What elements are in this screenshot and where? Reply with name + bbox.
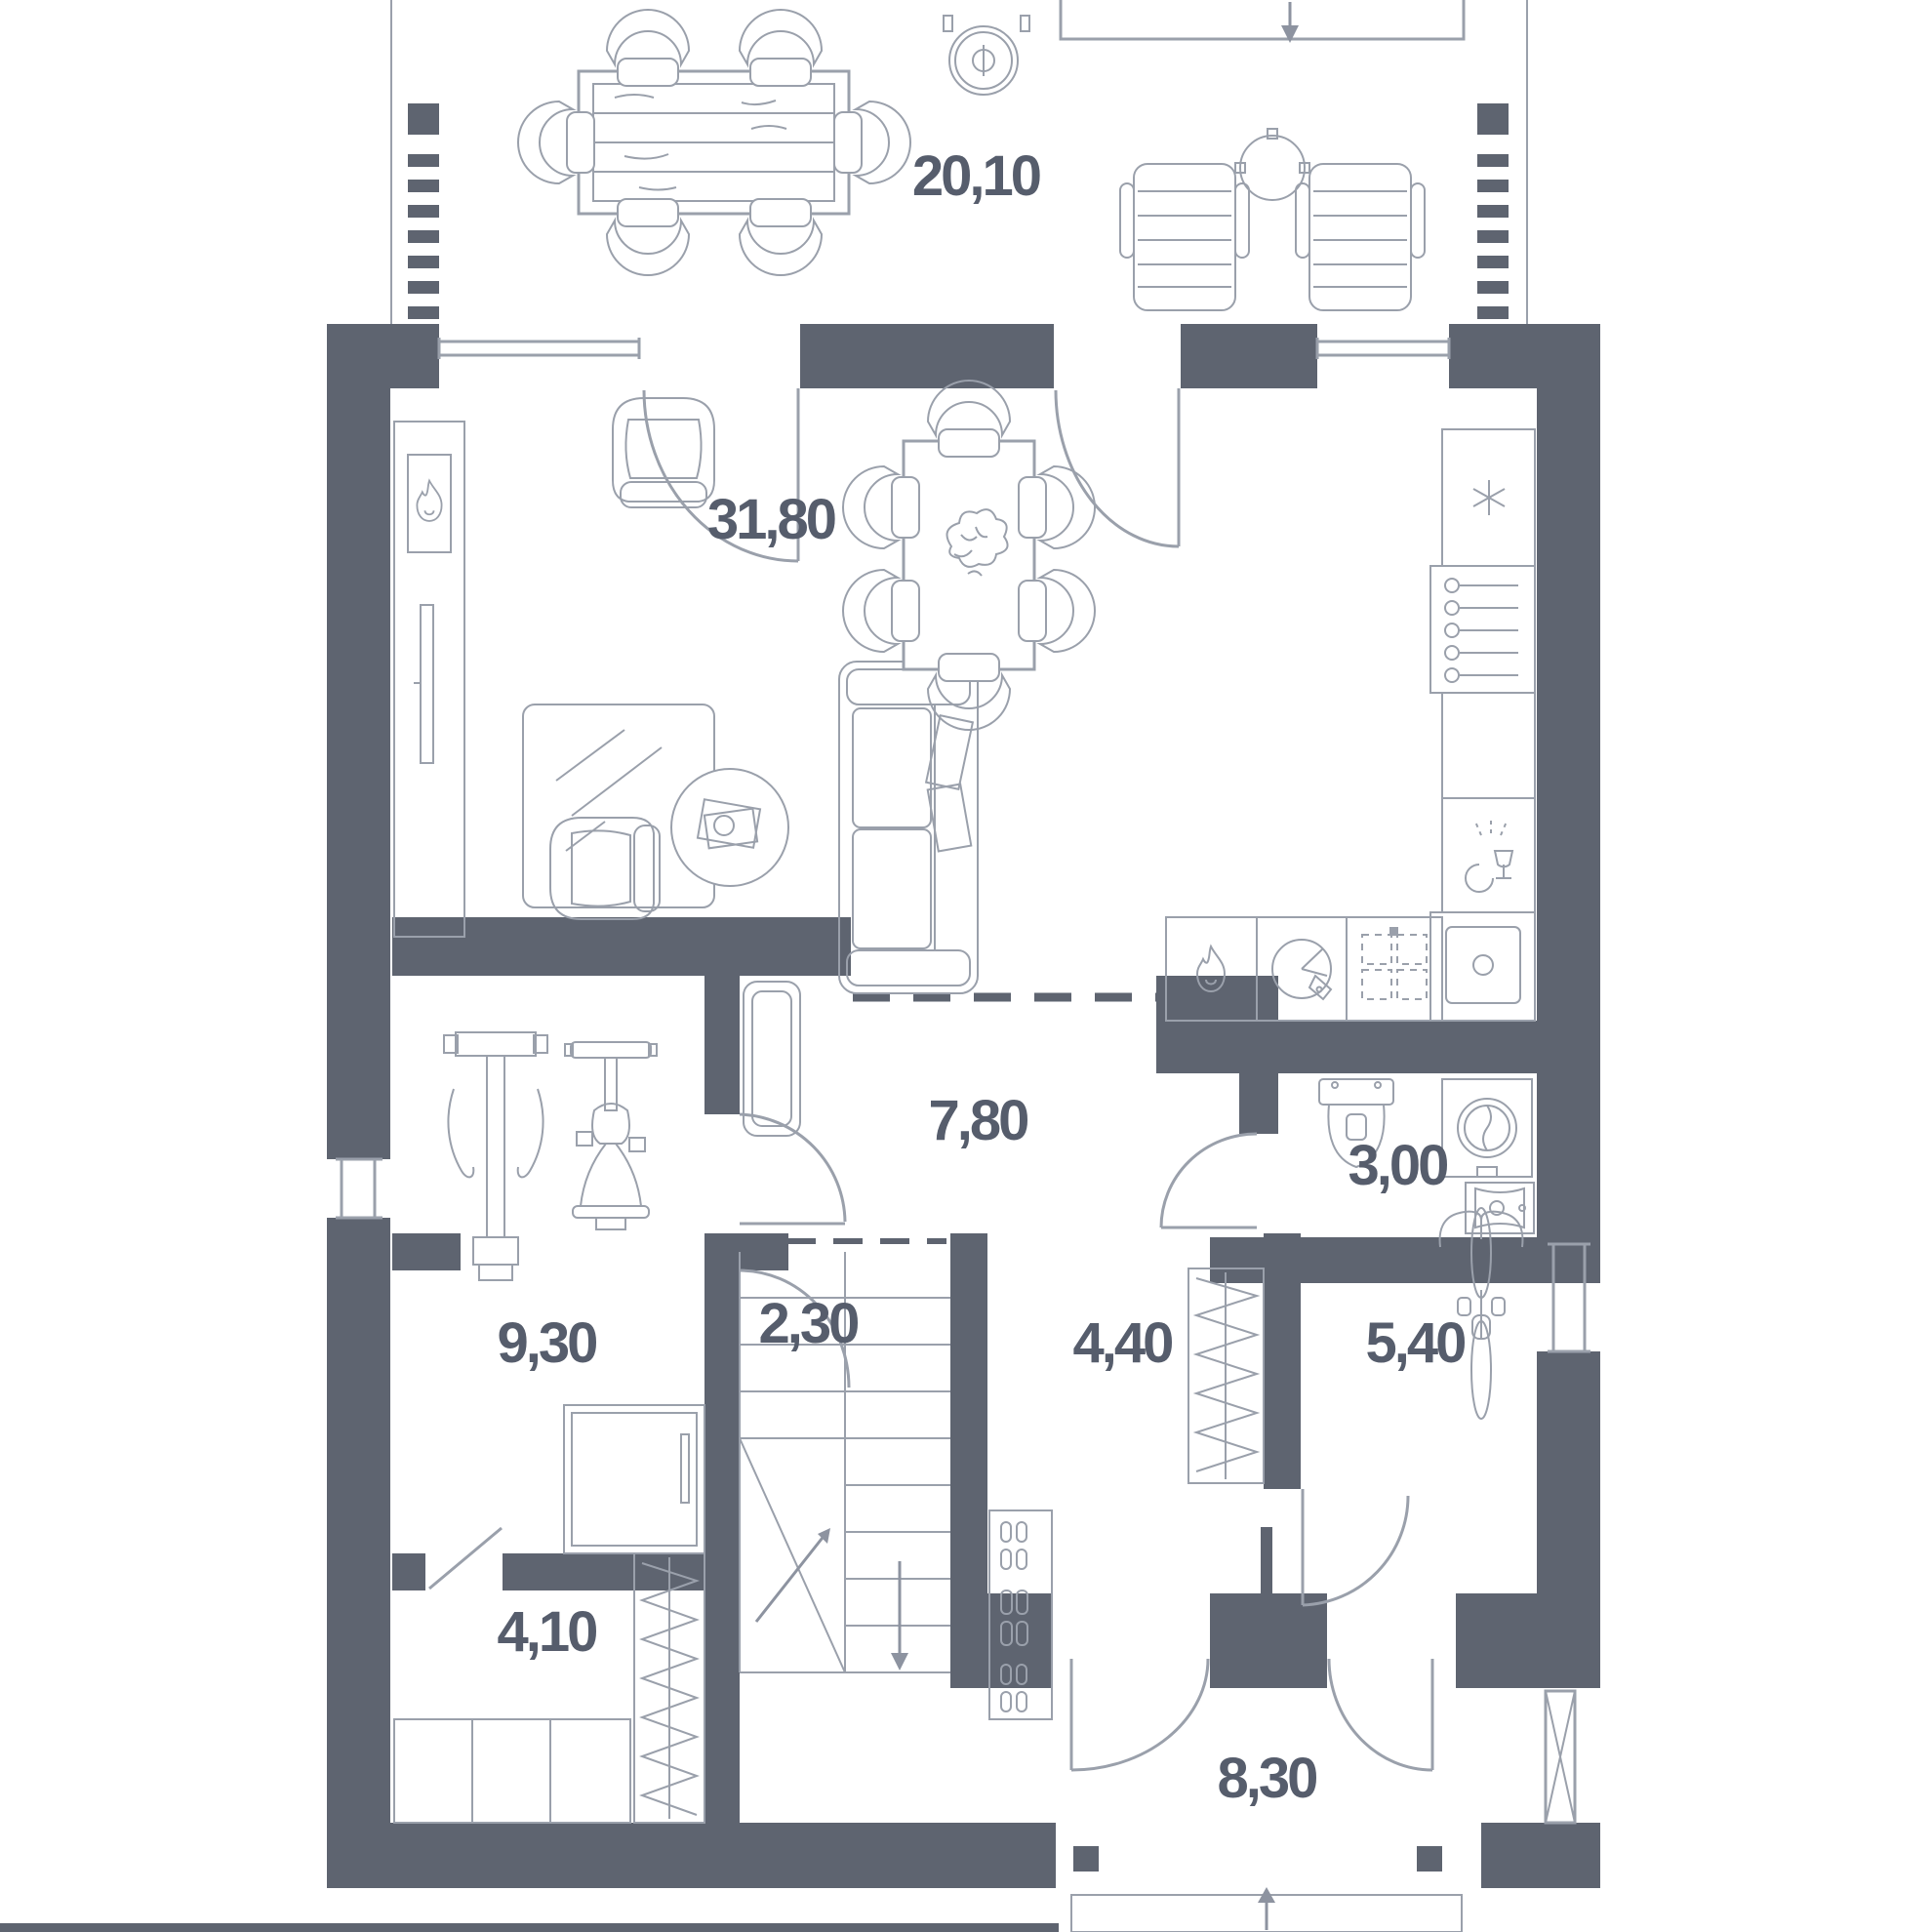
fireplace	[408, 455, 451, 552]
floor-plan: 20,10 31,80 7,80 3,00 9,30 2,30 4,40 5,4…	[0, 0, 1932, 1932]
door-gym	[740, 1114, 845, 1224]
living-room	[394, 398, 978, 993]
stairs-down-arrow-icon	[891, 1561, 908, 1670]
lounge-chairs	[1120, 129, 1425, 310]
label-porch: 8,30	[1218, 1747, 1317, 1810]
dining-table-terrace	[518, 10, 910, 275]
armchair	[613, 398, 714, 507]
window-left-wall	[336, 1159, 382, 1218]
label-closet: 4,10	[498, 1600, 597, 1664]
dining-set	[843, 381, 1095, 730]
window-top-right	[1317, 338, 1449, 359]
label-bathroom: 3,00	[1348, 1134, 1448, 1197]
chair	[607, 10, 689, 86]
door-bathroom	[1161, 1134, 1257, 1228]
walls	[0, 324, 1600, 1932]
label-hallway: 7,80	[929, 1089, 1028, 1152]
oven-icon	[1272, 940, 1331, 999]
door-storage	[1303, 1489, 1408, 1605]
snowflake-icon	[1473, 480, 1505, 515]
dishwasher-icon	[1442, 798, 1535, 912]
wine-rack-icon	[1430, 566, 1535, 693]
kitchen	[1166, 429, 1535, 1021]
gym-room	[444, 1032, 657, 1280]
side-table	[1240, 136, 1305, 200]
label-living: 31,80	[707, 488, 835, 551]
hatch-ladder-left	[408, 103, 439, 319]
coffee-table	[671, 769, 788, 886]
hob-icon	[1362, 935, 1427, 999]
label-terrace: 20,10	[912, 144, 1040, 208]
clothes-rail-entry	[1188, 1268, 1264, 1483]
kitchen-column	[1430, 429, 1535, 1021]
window-cross-icon	[1546, 1691, 1575, 1823]
kitchen-sink-icon	[1430, 912, 1535, 1021]
door-closet	[429, 1528, 502, 1589]
porch-post	[1417, 1846, 1442, 1872]
porch-post	[1073, 1846, 1099, 1872]
hatch-ladder-right	[1477, 103, 1509, 319]
wardrobe-sliding	[564, 1405, 704, 1553]
tv-icon	[414, 605, 433, 763]
fireplace-flame-icon	[417, 481, 441, 521]
clothes-rail-closet	[634, 1553, 704, 1823]
label-room-930: 9,30	[498, 1311, 597, 1375]
washbasin-icon	[1466, 1183, 1534, 1233]
sofa	[839, 662, 978, 993]
porch-steps	[1071, 1887, 1462, 1932]
washing-machine-icon	[1442, 1079, 1532, 1177]
stairs-up-arrow-icon	[756, 1528, 830, 1622]
media-wall	[394, 422, 464, 937]
label-stairs: 2,30	[759, 1292, 859, 1355]
hallway	[744, 982, 800, 1136]
armchair	[550, 818, 660, 919]
fire-pit-icon	[944, 16, 1029, 95]
floor-plan-drawing: 20,10 31,80 7,80 3,00 9,30 2,30 4,40 5,4…	[0, 0, 1932, 1932]
label-entry: 4,40	[1073, 1311, 1173, 1375]
cabinets	[394, 1719, 630, 1823]
canopy-edge	[1061, 0, 1464, 43]
exercise-bike	[565, 1042, 657, 1229]
label-storage: 5,40	[1366, 1311, 1466, 1375]
window-top-left	[439, 338, 639, 359]
door-terrace-dining	[1056, 388, 1179, 546]
door-porch-right	[1329, 1659, 1432, 1770]
door-porch-left	[1071, 1659, 1208, 1770]
